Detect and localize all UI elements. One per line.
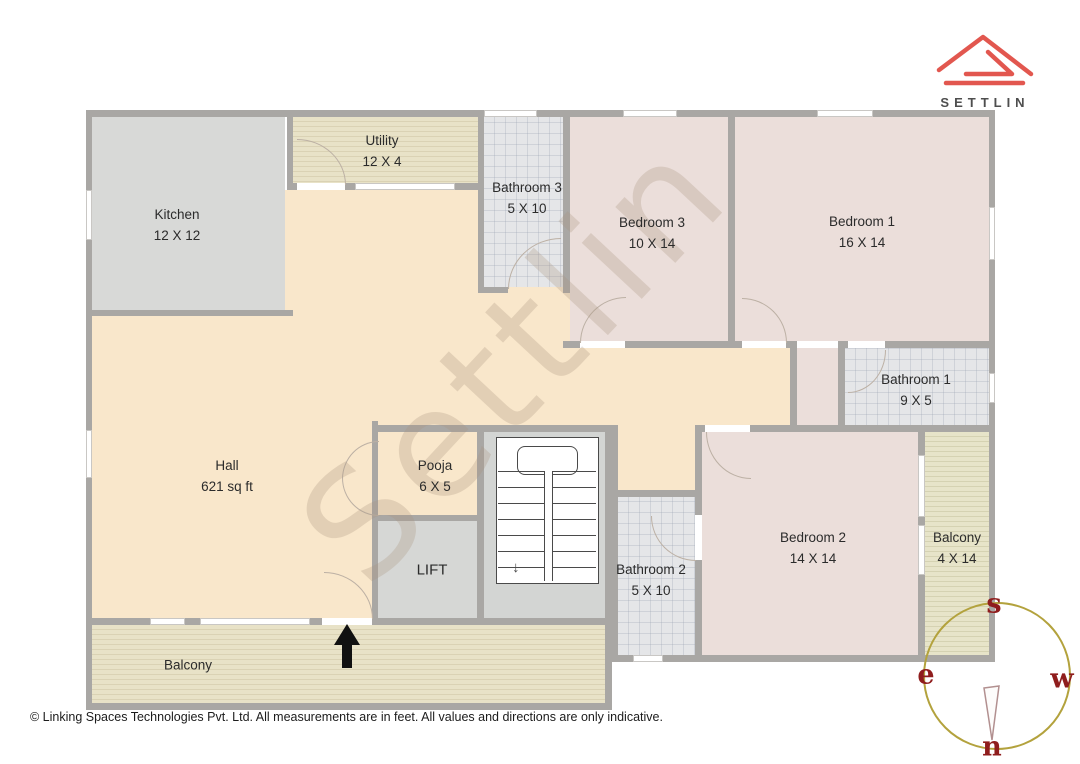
window	[633, 655, 663, 662]
wall	[310, 618, 322, 625]
brand-logo: SETTLIN	[930, 30, 1040, 110]
window	[86, 190, 92, 240]
wall	[605, 428, 612, 710]
window	[918, 455, 925, 517]
copyright-text: © Linking Spaces Technologies Pvt. Ltd. …	[30, 710, 663, 724]
compass-needle-icon	[980, 684, 1004, 746]
compass-south: s	[986, 589, 1001, 620]
label-bedroom-2: Bedroom 2 14 X 14	[780, 528, 846, 570]
stair-down-arrow-icon: ↓	[512, 560, 520, 575]
wall	[287, 117, 293, 183]
wall	[86, 618, 150, 625]
label-bedroom-1: Bedroom 1 16 X 14	[829, 212, 895, 254]
wall	[86, 310, 293, 316]
passage	[612, 425, 695, 497]
wall	[695, 425, 705, 432]
wall	[750, 425, 995, 432]
wall	[695, 432, 702, 515]
wall	[372, 618, 612, 625]
compass-east: e	[917, 660, 934, 691]
window	[989, 373, 995, 403]
window	[86, 430, 92, 478]
entrance-arrow-head	[334, 624, 360, 645]
label-balcony-right: Balcony 4 X 14	[933, 528, 981, 570]
label-hall: Hall 621 sq ft	[201, 456, 253, 498]
bedroom-1-alcove	[797, 348, 838, 432]
wall	[612, 425, 618, 662]
wall	[345, 183, 355, 190]
window	[484, 110, 537, 117]
label-bathroom-3: Bathroom 3 5 X 10	[492, 178, 562, 220]
compass-west: w	[1050, 664, 1073, 695]
label-balcony-bottom: Balcony	[164, 656, 212, 677]
wall	[185, 618, 200, 625]
wall	[918, 432, 925, 455]
wall	[838, 348, 845, 425]
window	[989, 207, 995, 260]
entrance-arrow-stem	[342, 644, 352, 668]
wall	[885, 341, 995, 348]
wall	[612, 490, 702, 497]
brand-name: SETTLIN	[930, 95, 1040, 110]
label-pooja: Pooja 6 X 5	[418, 456, 453, 498]
label-bedroom-3: Bedroom 3 10 X 14	[619, 213, 685, 255]
label-utility: Utility 12 X 4	[362, 131, 401, 173]
wall	[918, 575, 925, 655]
wall	[838, 341, 848, 348]
window	[150, 618, 185, 625]
stair-divider	[544, 471, 553, 581]
entrance-arrow-icon	[334, 624, 360, 668]
hall-upper	[285, 190, 480, 316]
window	[918, 525, 925, 575]
wall	[86, 703, 612, 710]
wall	[287, 183, 297, 190]
floorplan-page: ↓ Settlin Kitchen 12 X 12 Utility 12 X 4…	[0, 0, 1080, 764]
wall	[790, 341, 797, 432]
wall	[695, 560, 702, 662]
stair-flight-right	[551, 471, 596, 581]
wall	[918, 517, 925, 525]
label-lift: LIFT	[417, 558, 448, 581]
window	[817, 110, 873, 117]
label-kitchen: Kitchen 12 X 12	[154, 205, 201, 247]
label-bathroom-2: Bathroom 2 5 X 10	[616, 560, 686, 602]
house-logo-icon	[933, 30, 1037, 88]
window	[200, 618, 310, 625]
window	[355, 183, 455, 190]
label-bathroom-1: Bathroom 1 9 X 5	[881, 370, 951, 412]
